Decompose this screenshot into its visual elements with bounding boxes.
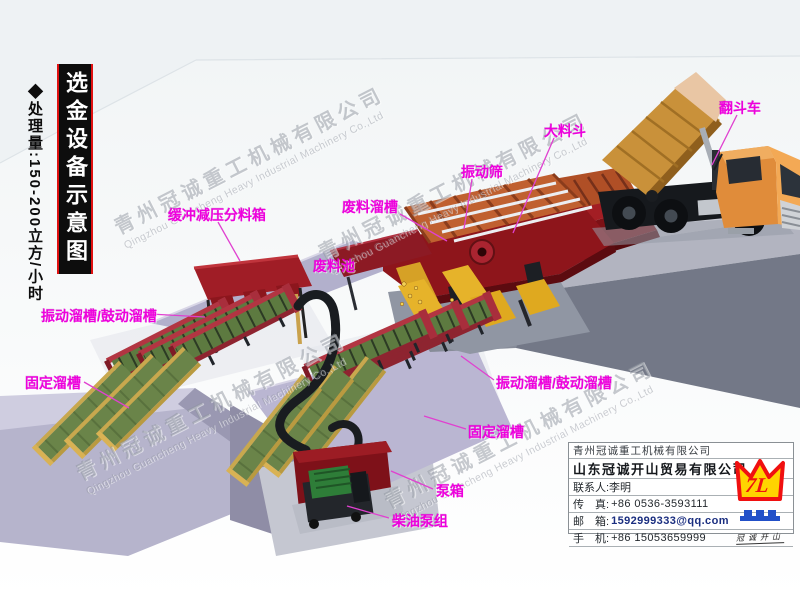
email-label: 邮 箱: <box>573 513 609 529</box>
equipment-label-vibrating-screen: 振动筛 <box>461 162 503 182</box>
equipment-label-diesel-pump-set: 柴油泵组 <box>392 511 448 531</box>
capacity-note: ◆处理量:150-200立方/小时 <box>24 84 45 324</box>
fax-value: +86 0536-3593111 <box>611 498 708 510</box>
contact-card: 青州冠诚重工机械有限公司 山东冠诚开山贸易有限公司 联系人:李明 传 真: +8… <box>568 442 794 534</box>
equipment-label-vibrating-sluice-left: 振动溜槽/鼓动溜槽 <box>41 306 157 326</box>
equipment-label-vibrating-sluice-right: 振动溜槽/鼓动溜槽 <box>496 373 612 393</box>
equipment-label-waste-pool: 废料池 <box>313 256 355 276</box>
equipment-label-dump-truck: 翻斗车 <box>719 98 761 118</box>
logo-monogram: 7L <box>744 473 770 497</box>
equipment-label-buffer-splitter-box: 缓冲减压分料箱 <box>168 205 266 225</box>
title-banner-text: 选金设备示意图 <box>59 71 91 267</box>
logo-base-icon <box>734 510 786 522</box>
equipment-label-pump-box: 泵箱 <box>436 481 464 501</box>
equipment-label-fixed-sluice-left: 固定溜槽 <box>25 373 81 393</box>
fax-label: 传 真: <box>573 496 609 512</box>
gold-selection-equipment-diagram: 青州冠诚重工机械有限公司Qingzhou Guancheng Heavy Ind… <box>0 0 800 600</box>
email-value: 1592999333@qq.com <box>611 515 729 527</box>
equipment-label-big-hopper: 大料斗 <box>544 121 586 141</box>
mobile-value: +86 15053659999 <box>611 532 706 544</box>
equipment-label-fixed-sluice-right: 固定溜槽 <box>468 422 524 442</box>
guancheng-crown-logo: 7L 冠诚开山 <box>732 458 788 534</box>
company-primary-row: 青州冠诚重工机械有限公司 <box>569 443 793 459</box>
crown-icon: 7L <box>734 458 786 504</box>
equipment-label-waste-chute: 废料溜槽 <box>342 197 398 217</box>
company-primary: 青州冠诚重工机械有限公司 <box>573 443 711 458</box>
title-banner: 选金设备示意图 <box>57 64 93 274</box>
mobile-label: 手 机: <box>573 530 609 546</box>
company-secondary: 山东冠诚开山贸易有限公司 <box>573 459 747 478</box>
contact-person: 联系人:李明 <box>573 479 631 495</box>
logo-caption: 冠诚开山 <box>736 531 784 545</box>
